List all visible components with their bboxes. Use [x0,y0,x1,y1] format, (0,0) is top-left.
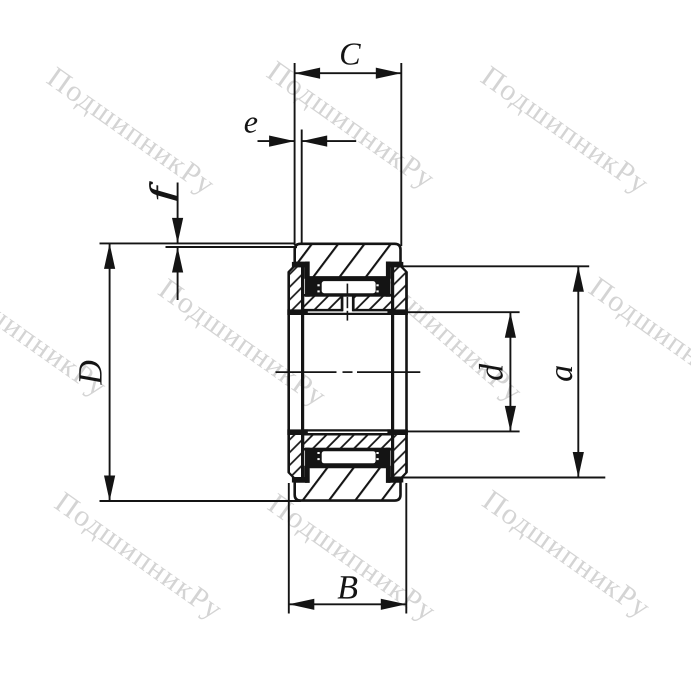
svg-text:a: a [543,365,580,382]
svg-text:C: C [339,36,361,72]
svg-text:d: d [474,363,511,381]
svg-text:D: D [72,360,109,386]
svg-text:B: B [337,570,358,607]
svg-text:e: e [244,103,258,139]
